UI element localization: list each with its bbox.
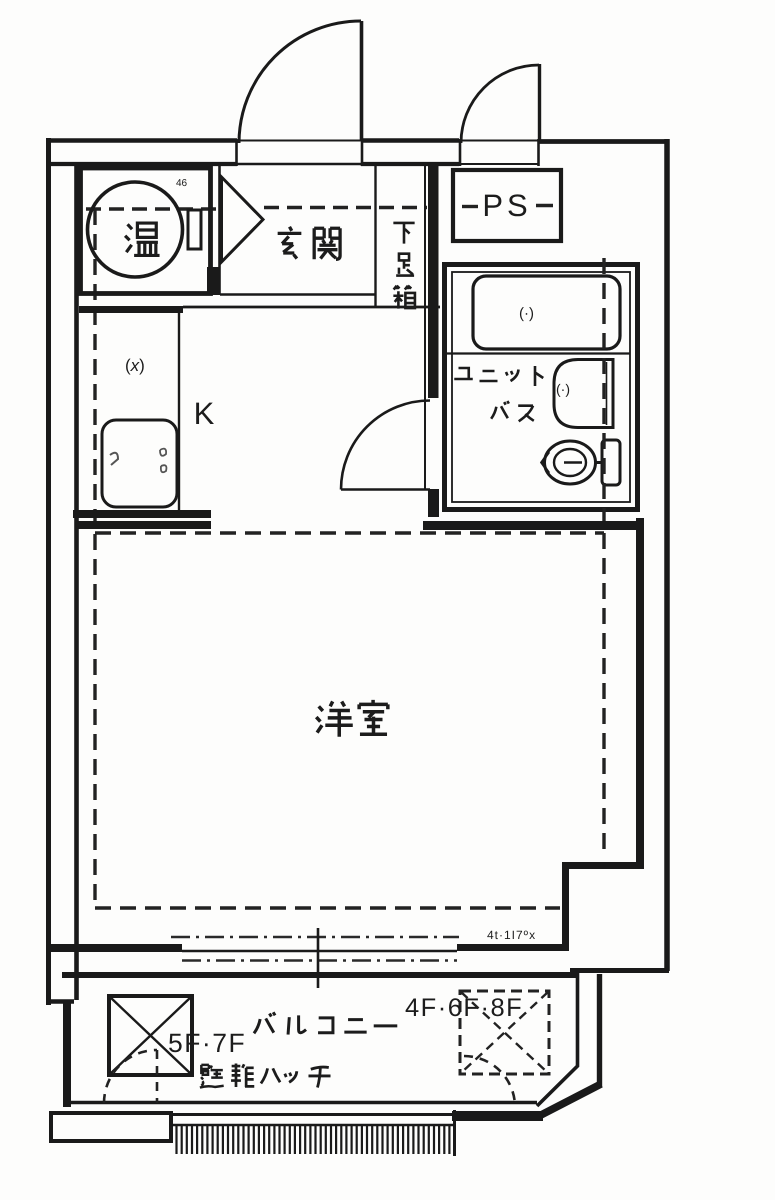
svg-text:(x): (x) (125, 356, 145, 375)
svg-text:5F·7F: 5F·7F (168, 1028, 246, 1058)
svg-text:PS: PS (482, 188, 531, 223)
svg-text:K: K (194, 396, 215, 431)
svg-text:46: 46 (176, 178, 188, 189)
svg-text:4t·1I7ºx: 4t·1I7ºx (487, 928, 536, 942)
svg-text:(·): (·) (556, 381, 570, 397)
svg-text:4F·6F·8F: 4F·6F·8F (405, 994, 523, 1022)
svg-text:(·): (·) (519, 305, 534, 322)
